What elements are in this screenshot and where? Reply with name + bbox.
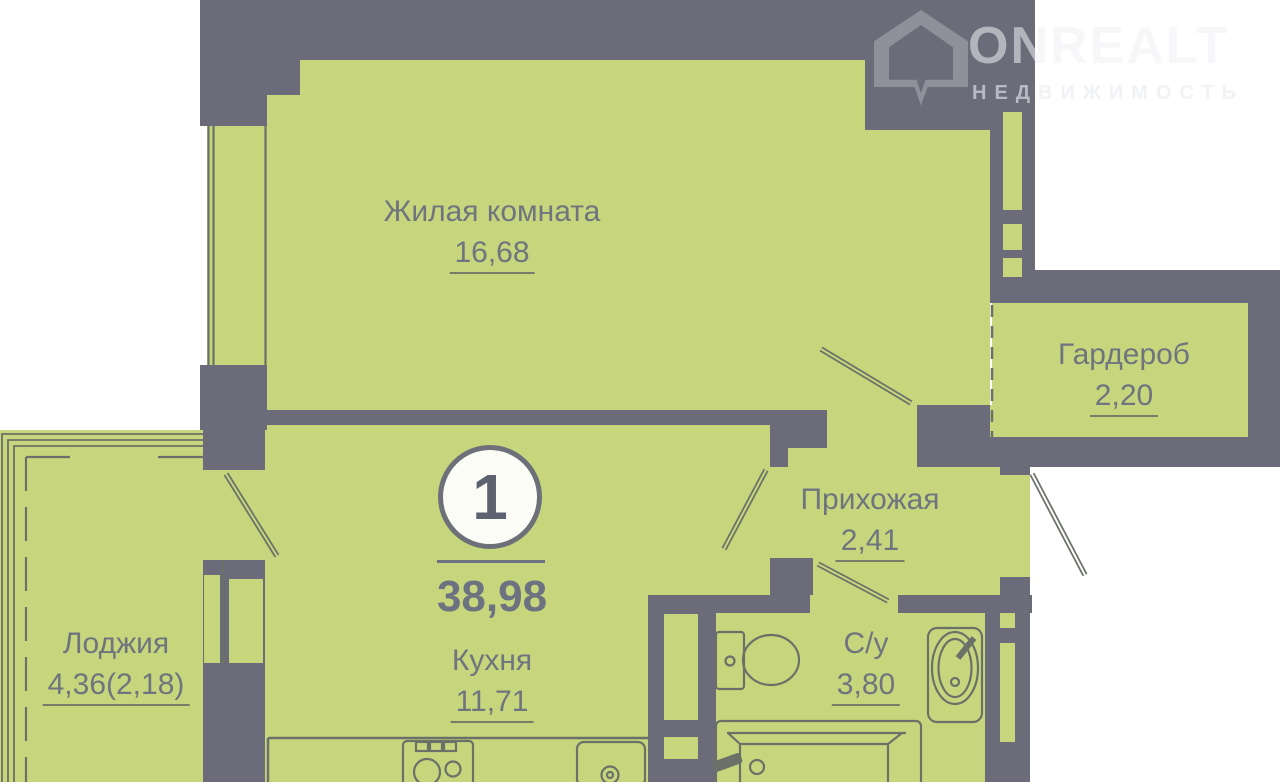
window-slot xyxy=(1003,224,1022,250)
window-slot xyxy=(1003,112,1022,210)
room-name: С/у xyxy=(832,626,900,663)
room-living-area xyxy=(265,95,990,410)
room-area: 2,20 xyxy=(1058,378,1190,415)
room-name: Лоджия xyxy=(43,626,190,663)
room-area: 3,80 xyxy=(832,667,900,704)
room-area: 2,41 xyxy=(800,523,939,560)
wall-segment xyxy=(917,405,990,467)
label-kitchen: Кухня 11,71 xyxy=(451,643,534,720)
wall-segment xyxy=(990,270,1280,303)
loggia-door-opening xyxy=(203,470,265,560)
wall-segment xyxy=(770,558,813,595)
logo-tagline-text: НЕДВИЖИМОСТЬ xyxy=(972,82,1244,105)
wall-segment xyxy=(200,365,267,430)
window-slot xyxy=(1003,258,1022,277)
room-name: Прихожая xyxy=(800,482,939,519)
room-area: 16,68 xyxy=(384,235,601,272)
loggia-window-inset xyxy=(229,579,263,663)
loggia-window-inset xyxy=(204,575,220,663)
wall-segment xyxy=(770,448,788,467)
wall-segment xyxy=(200,0,870,60)
logo-brand-text: ONREALT xyxy=(968,16,1229,76)
room-loggia-area xyxy=(0,430,203,782)
room-name: Жилая комната xyxy=(384,194,601,231)
room-area: 4,36(2,18) xyxy=(43,667,190,704)
room-living-area xyxy=(300,60,865,100)
duct-shaft xyxy=(664,737,698,759)
label-living-room: Жилая комната 16,68 xyxy=(384,194,601,271)
label-bathroom: С/у 3,80 xyxy=(832,626,900,703)
wall-segment xyxy=(1000,467,1030,475)
wall-segment xyxy=(990,437,1280,467)
label-hallway: Прихожая 2,41 xyxy=(800,482,939,559)
rooms-count-badge: 1 xyxy=(438,445,542,549)
window-slot xyxy=(1000,613,1015,628)
room-name: Кухня xyxy=(451,643,534,680)
duct-shaft xyxy=(664,614,698,720)
wall-segment xyxy=(265,410,790,425)
entry-door xyxy=(1032,474,1085,575)
room-name: Гардероб xyxy=(1058,337,1190,374)
floorplan-canvas: Жилая комната 16,68 Гардероб 2,20 Прихож… xyxy=(0,0,1280,782)
bay-window-area xyxy=(207,126,267,365)
total-area: 38,98 xyxy=(437,572,547,622)
window-slot xyxy=(1000,643,1015,742)
room-area: 11,71 xyxy=(451,684,534,721)
wall-segment xyxy=(985,595,1000,782)
rooms-count: 1 xyxy=(472,460,508,534)
wall-segment xyxy=(770,410,827,448)
label-wardrobe: Гардероб 2,20 xyxy=(1058,337,1190,414)
label-loggia: Лоджия 4,36(2,18) xyxy=(43,626,190,703)
wall-segment xyxy=(203,665,265,782)
wall-segment xyxy=(200,60,267,126)
badge-divider xyxy=(437,560,545,563)
wall-segment xyxy=(203,430,265,470)
